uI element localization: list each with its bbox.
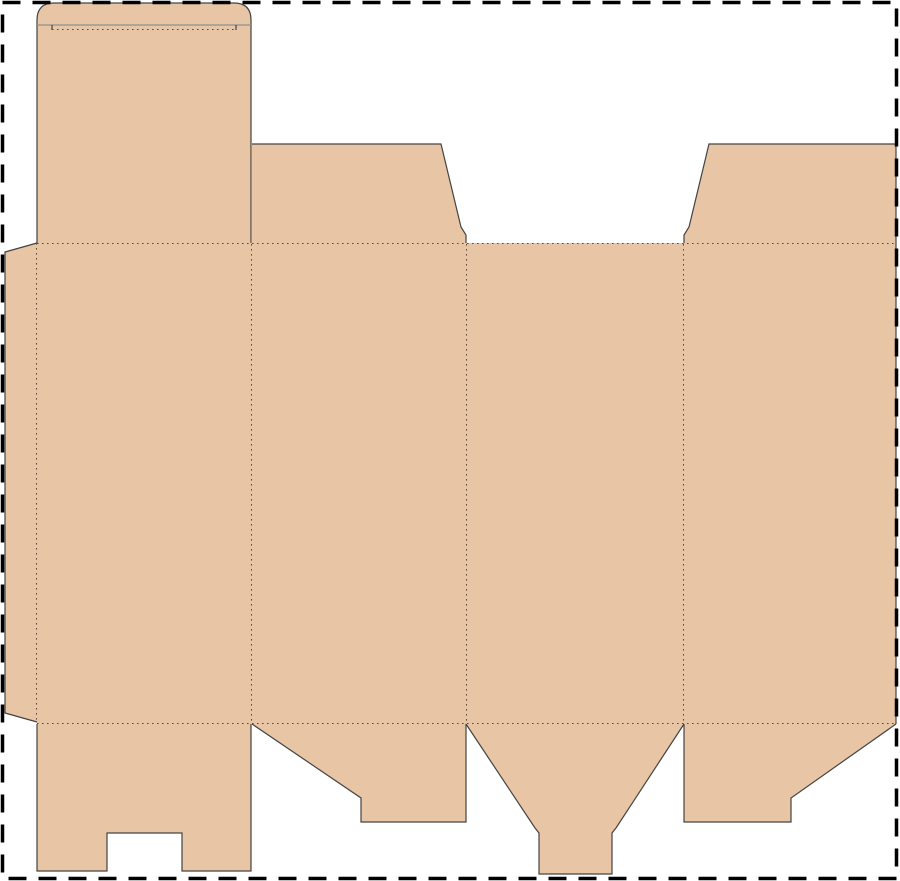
top-flap-left[interactable]	[252, 144, 466, 243]
dieline-artboard	[0, 0, 900, 881]
panel-fills-layer	[5, 3, 896, 874]
lid-tuck-panel[interactable]	[37, 3, 251, 243]
bottom-flap-slotted[interactable]	[37, 724, 251, 871]
dieline-canvas[interactable]	[0, 0, 900, 881]
top-flap-right[interactable]	[684, 144, 896, 243]
bottom-flap-tongue[interactable]	[466, 724, 684, 874]
bottom-flap-step-left[interactable]	[252, 724, 466, 822]
bottom-flap-step-right[interactable]	[684, 724, 896, 822]
glue-flap[interactable]	[5, 243, 37, 722]
